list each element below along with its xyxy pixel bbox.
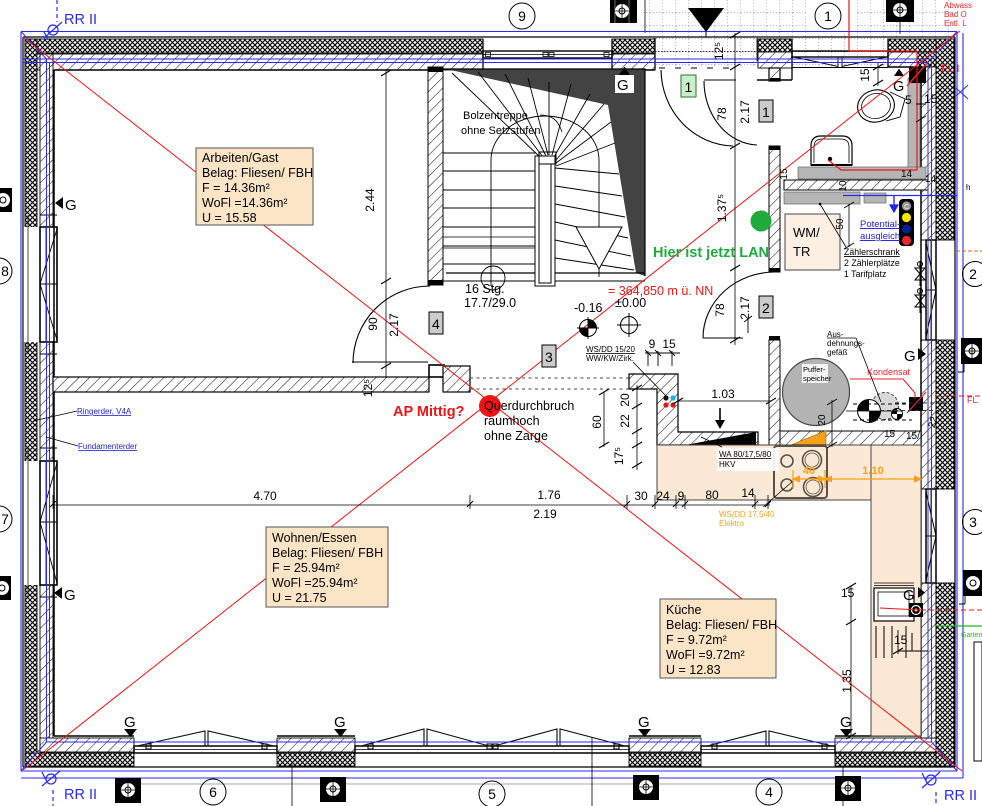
svg-text:U = 15.58: U = 15.58 (202, 211, 257, 225)
svg-text:G: G (124, 714, 136, 731)
svg-text:Kondensat: Kondensat (867, 367, 911, 377)
svg-text:22: 22 (618, 414, 632, 428)
svg-text:78: 78 (715, 107, 729, 121)
svg-text:20: 20 (817, 414, 828, 426)
svg-text:Puffer-: Puffer- (803, 365, 826, 374)
svg-text:C: C (904, 202, 910, 211)
svg-text:WoFl =14.36m²: WoFl =14.36m² (202, 196, 288, 210)
svg-text:G: G (903, 587, 915, 604)
svg-text:TR: TR (793, 244, 810, 259)
svg-text:G: G (334, 714, 346, 731)
svg-text:1: 1 (685, 79, 693, 95)
svg-text:1: 1 (824, 8, 832, 24)
svg-text:Arbeiten/Gast: Arbeiten/Gast (202, 151, 279, 165)
svg-text:RR II: RR II (944, 788, 977, 804)
svg-text:1.76: 1.76 (537, 488, 561, 502)
svg-text:Entl. L: Entl. L (944, 19, 967, 28)
svg-text:Belag: Fliesen/ FBH: Belag: Fliesen/ FBH (272, 546, 383, 560)
svg-text:7: 7 (1, 511, 9, 527)
svg-text:±0.00: ±0.00 (615, 296, 646, 310)
svg-text:17⁵: 17⁵ (612, 447, 626, 465)
svg-text:Potential-: Potential- (860, 219, 900, 230)
svg-text:1.37⁵: 1.37⁵ (715, 194, 729, 222)
svg-text:G: G (904, 348, 916, 365)
svg-text:2: 2 (969, 266, 977, 282)
svg-text:10: 10 (838, 180, 849, 192)
svg-text:HKV: HKV (719, 460, 736, 469)
svg-text:G: G (617, 77, 629, 94)
svg-text:2.17: 2.17 (387, 313, 401, 337)
svg-text:15: 15 (662, 337, 676, 351)
svg-text:Garten: Garten (961, 632, 982, 639)
svg-text:24: 24 (656, 489, 670, 503)
svg-text:8: 8 (1, 263, 9, 279)
svg-text:2.17: 2.17 (738, 100, 752, 124)
svg-text:5: 5 (488, 786, 496, 802)
svg-text:78: 78 (713, 303, 727, 317)
svg-text:Ringerder, V4A: Ringerder, V4A (77, 407, 132, 416)
svg-text:1.03: 1.03 (711, 387, 735, 401)
svg-text:speicher: speicher (803, 374, 832, 383)
svg-text:WW/KW/Zirk.: WW/KW/Zirk. (586, 354, 634, 363)
svg-text:1.10: 1.10 (862, 465, 883, 477)
svg-text:4.70: 4.70 (253, 489, 277, 503)
svg-text:Küche: Küche (666, 603, 701, 617)
svg-text:4: 4 (432, 316, 440, 332)
svg-text:G: G (64, 587, 76, 604)
svg-text:Zählerschrank: Zählerschrank (844, 247, 900, 257)
svg-text:5: 5 (905, 93, 912, 107)
svg-text:9: 9 (678, 489, 685, 503)
svg-text:ohne Setzstufen: ohne Setzstufen (461, 125, 541, 137)
svg-text:WA 80/17,5/80: WA 80/17,5/80 (719, 450, 772, 459)
svg-text:2 Zählerplätze: 2 Zählerplätze (844, 258, 900, 268)
svg-text:WS/DD 17,5/40: WS/DD 17,5/40 (719, 510, 775, 519)
svg-text:Bolzentreppe: Bolzentreppe (463, 110, 528, 122)
svg-text:9: 9 (518, 8, 526, 24)
svg-text:2.44: 2.44 (363, 188, 377, 212)
svg-text:15: 15 (924, 92, 938, 106)
svg-text:80: 80 (705, 488, 719, 502)
svg-text:2: 2 (762, 300, 770, 316)
svg-text:Belag: Fliesen/ FBH: Belag: Fliesen/ FBH (666, 618, 777, 632)
svg-text:12⁵: 12⁵ (361, 379, 375, 397)
svg-text:G: G (638, 714, 650, 731)
svg-text:raumhoch: raumhoch (484, 414, 540, 428)
svg-text:9: 9 (649, 337, 656, 351)
svg-text:40: 40 (803, 465, 815, 477)
svg-text:6: 6 (209, 784, 217, 800)
svg-text:Querdurchbruch: Querdurchbruch (484, 399, 574, 413)
svg-text:90: 90 (366, 317, 380, 331)
svg-text:3: 3 (969, 514, 977, 530)
svg-text:U = 12.83: U = 12.83 (666, 663, 721, 677)
svg-text:2.19: 2.19 (533, 507, 557, 521)
svg-text:50: 50 (835, 218, 846, 230)
svg-text:2.17: 2.17 (738, 296, 752, 320)
svg-text:15: 15 (858, 68, 872, 82)
svg-text:Wohnen/Essen: Wohnen/Essen (272, 531, 357, 545)
svg-text:G: G (65, 197, 77, 214)
svg-text:WoFl =9.72m²: WoFl =9.72m² (666, 648, 745, 662)
svg-text:1: 1 (762, 104, 770, 120)
svg-text:F = 14.36m²: F = 14.36m² (202, 181, 270, 195)
svg-text:WM/: WM/ (793, 225, 820, 240)
svg-text:1 Tarifplatz: 1 Tarifplatz (844, 269, 886, 279)
svg-text:15/: 15/ (906, 431, 920, 442)
svg-text:gefäß: gefäß (827, 348, 848, 357)
svg-text:14: 14 (741, 486, 755, 500)
svg-text:AP Mittig?: AP Mittig? (393, 404, 465, 420)
svg-text:WS/DD 15/20: WS/DD 15/20 (586, 345, 635, 354)
svg-text:U = 21.75: U = 21.75 (272, 591, 327, 605)
svg-text:15: 15 (894, 633, 908, 647)
svg-text:Fundamenterder: Fundamenterder (78, 442, 137, 451)
svg-text:16 Stg.: 16 Stg. (465, 282, 505, 296)
svg-text:G: G (840, 714, 852, 731)
svg-text:F = 9.72m²: F = 9.72m² (666, 633, 727, 647)
svg-text:RR II: RR II (64, 787, 97, 803)
svg-text:14: 14 (901, 169, 913, 180)
svg-text:Bad O: Bad O (944, 10, 967, 19)
svg-text:17.7/29.0: 17.7/29.0 (464, 296, 516, 310)
svg-text:FL I: FL I (941, 63, 960, 75)
svg-text:1.35: 1.35 (840, 669, 854, 693)
svg-text:Hier ist jetzt LAN: Hier ist jetzt LAN (653, 245, 769, 261)
svg-text:30: 30 (634, 489, 648, 503)
svg-text:F = 25.94m²: F = 25.94m² (272, 561, 340, 575)
svg-text:Belag: Fliesen/ FBH: Belag: Fliesen/ FBH (202, 166, 313, 180)
svg-text:4: 4 (765, 784, 773, 800)
svg-text:ausgleich: ausgleich (860, 231, 900, 242)
svg-text:12⁵: 12⁵ (712, 42, 726, 60)
svg-text:15: 15 (884, 429, 896, 440)
svg-text:h: h (966, 183, 970, 192)
svg-text:-0.16: -0.16 (574, 301, 603, 315)
svg-text:RR II: RR II (64, 12, 97, 28)
svg-text:15: 15 (779, 168, 790, 180)
svg-text:G: G (893, 79, 904, 95)
svg-text:ohne Zarge: ohne Zarge (484, 429, 548, 443)
svg-text:Elektro: Elektro (719, 519, 744, 528)
svg-text:15: 15 (841, 586, 855, 600)
svg-text:3: 3 (545, 349, 553, 365)
svg-text:20: 20 (618, 393, 632, 407)
svg-text:Abwass: Abwass (944, 1, 972, 10)
svg-text:WoFl =25.94m²: WoFl =25.94m² (272, 576, 358, 590)
svg-text:60: 60 (590, 415, 604, 429)
svg-text:14: 14 (925, 174, 937, 185)
